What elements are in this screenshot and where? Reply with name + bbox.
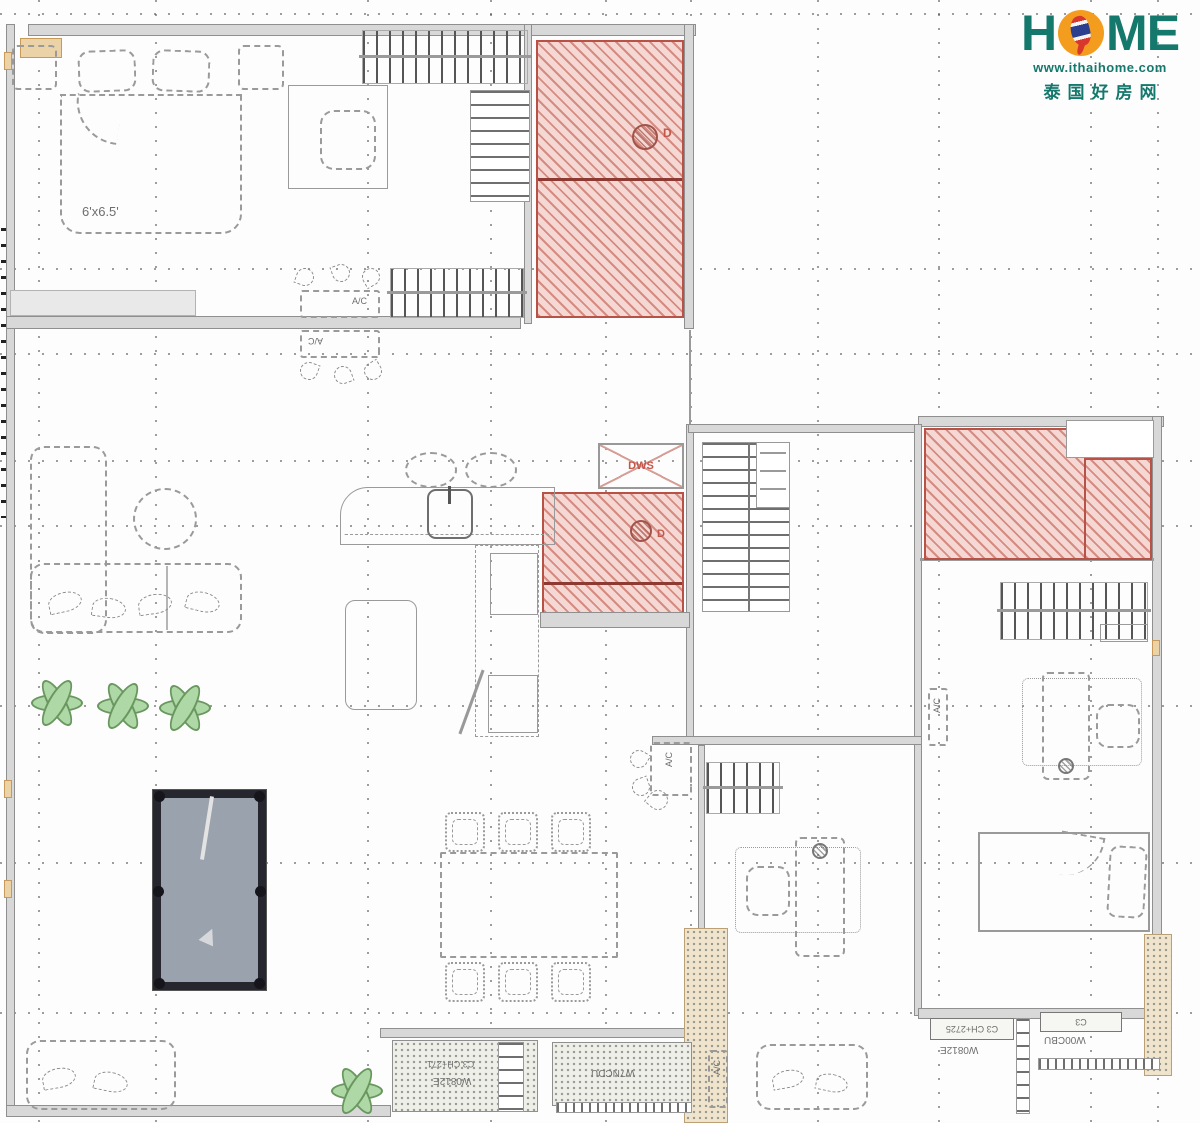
logo-letters-me: ME — [1106, 8, 1179, 58]
basin-oval-2 — [465, 452, 517, 488]
ac-unit-office — [650, 742, 692, 796]
plant-deco-4 — [297, 359, 320, 382]
bed-size-label: 6'x6.5' — [82, 204, 119, 219]
door-mark-label-2: D — [657, 528, 665, 540]
dining-chair-6 — [551, 962, 591, 1002]
terrace-left-name: W0812E — [433, 1075, 471, 1086]
logo-chinese: 泰国好房网 — [1002, 78, 1198, 103]
dining-chair-2 — [498, 812, 538, 852]
dining-chair-4 — [445, 962, 485, 1002]
coffee-table-round — [133, 488, 197, 550]
kitchen-appliance — [488, 675, 538, 733]
plant-flower-3 — [158, 681, 212, 735]
hatch-zone-top-divider — [538, 178, 682, 181]
wall-left — [6, 24, 15, 1116]
tread-strip-right — [1038, 1058, 1160, 1070]
stair-landing-line3 — [760, 488, 786, 490]
grommet-office — [812, 843, 828, 859]
window-tag-bottom-right-text: C3 CH+2725 — [946, 1024, 998, 1034]
plant-deco-6 — [361, 359, 386, 384]
wall-bottom-mid — [380, 1028, 698, 1038]
closet-master-top — [362, 30, 528, 84]
dining-table — [440, 852, 618, 958]
chair-office — [746, 866, 790, 916]
notch-box — [1066, 420, 1154, 458]
grid-line-vertical — [938, 0, 940, 1123]
sill-mark-4 — [1152, 640, 1160, 656]
hatch-zone-mid-divider — [544, 582, 682, 585]
kitchen-island — [345, 600, 417, 710]
pillow-right — [151, 49, 210, 93]
plant-deco-8 — [627, 747, 652, 772]
pool-table — [153, 790, 266, 990]
plant-deco-5 — [331, 363, 354, 386]
dining-chair-3 — [551, 812, 591, 852]
logo-url: www.ithaihome.com — [1002, 60, 1198, 75]
grid-line-horizontal — [0, 353, 1200, 355]
plant-flower-4 — [330, 1064, 384, 1118]
chair-master — [320, 110, 376, 170]
sill-mark-3 — [4, 880, 12, 898]
wall-stairhall-top — [688, 424, 920, 433]
ac-unit-top — [300, 290, 380, 318]
wall-office-top — [652, 736, 922, 745]
chair-bedroom2 — [1096, 704, 1140, 748]
nightstand-left — [12, 45, 57, 90]
window-tag-c3: C3 — [1040, 1012, 1122, 1032]
column-bottom-right — [1144, 934, 1172, 1076]
logo-globe-icon — [1058, 10, 1104, 56]
dining-chair-5 — [498, 962, 538, 1002]
dining-chair-1 — [445, 812, 485, 852]
hatch-zone-mid — [542, 492, 684, 614]
stair-landing-line1 — [760, 452, 786, 454]
plant-flower-1 — [30, 676, 84, 730]
ac-label-office: A/C — [664, 752, 674, 767]
terrace-left-tag: C3 CH+271 — [427, 1059, 474, 1069]
sill-mark-2 — [4, 780, 12, 798]
logo-letter-h: H — [1021, 8, 1056, 58]
refrigerator — [490, 553, 538, 615]
name-cabinet: W00CBU — [1044, 1034, 1086, 1045]
dws-label: DWS — [628, 460, 654, 472]
door-mark-label: D — [663, 126, 672, 140]
terrace-right: W7NCDU — [552, 1042, 692, 1106]
ac-label-bedroom2: A/C — [932, 698, 942, 713]
wall-line-corridor — [689, 330, 691, 426]
name-bottom-right: W0812E — [940, 1044, 978, 1055]
wall-right-exterior — [1152, 416, 1162, 1020]
wardrobe-master-bottom — [390, 268, 524, 318]
rack-triangle — [198, 925, 219, 946]
ac-label-top: A/C — [352, 296, 367, 306]
bench-bedroom2 — [1100, 624, 1148, 642]
sill-mark-1 — [4, 52, 12, 70]
hatch-zone-right-a — [924, 428, 1086, 560]
cue-stick — [200, 796, 214, 860]
plant-flower-2 — [96, 679, 150, 733]
terrace-right-name: W7NCDU — [591, 1067, 635, 1078]
downlight-symbol — [632, 124, 658, 150]
nightstand-right — [238, 45, 284, 90]
faucet — [448, 486, 451, 504]
window-band-left — [10, 290, 196, 316]
wall-right-divider — [914, 424, 922, 1016]
plant-deco-2 — [329, 261, 352, 284]
shaft-box: DWS — [598, 443, 684, 489]
wall-redblock-right — [684, 24, 694, 329]
tread-strip-mid — [556, 1102, 692, 1113]
louver-strip — [1016, 1018, 1030, 1114]
stair-landing-line2 — [760, 470, 786, 472]
pillow-left — [77, 49, 136, 93]
grid-line-vertical — [1090, 0, 1092, 1123]
hatch-zone-right-b — [1084, 458, 1152, 560]
ac-label-bottom2: A/C — [712, 1060, 722, 1075]
site-logo: H ME www.ithaihome.com 泰国好房网 — [1002, 8, 1198, 103]
ladder-strip — [498, 1042, 524, 1112]
grommet-bedroom2 — [1058, 758, 1074, 774]
floor-plan: D DWS D 6'x6.5' A/C A/C — [0, 0, 1200, 1123]
shelving-master — [470, 90, 530, 202]
ac-label-bottom: A/C — [308, 336, 323, 346]
closet-office — [706, 762, 780, 814]
wall-stairhall-left — [686, 424, 694, 744]
window-tag-c3-text: C3 — [1075, 1017, 1087, 1027]
ac-unit-bedroom2 — [928, 688, 948, 746]
window-tag-bottom-right: C3 CH+2725 — [930, 1018, 1014, 1040]
ac-unit-bottom2 — [708, 1050, 728, 1108]
basin-oval-1 — [405, 452, 457, 488]
pillow-bedroom2 — [1106, 845, 1148, 919]
downlight-symbol-2 — [630, 520, 652, 542]
cabinet-below-hatch — [540, 612, 690, 628]
